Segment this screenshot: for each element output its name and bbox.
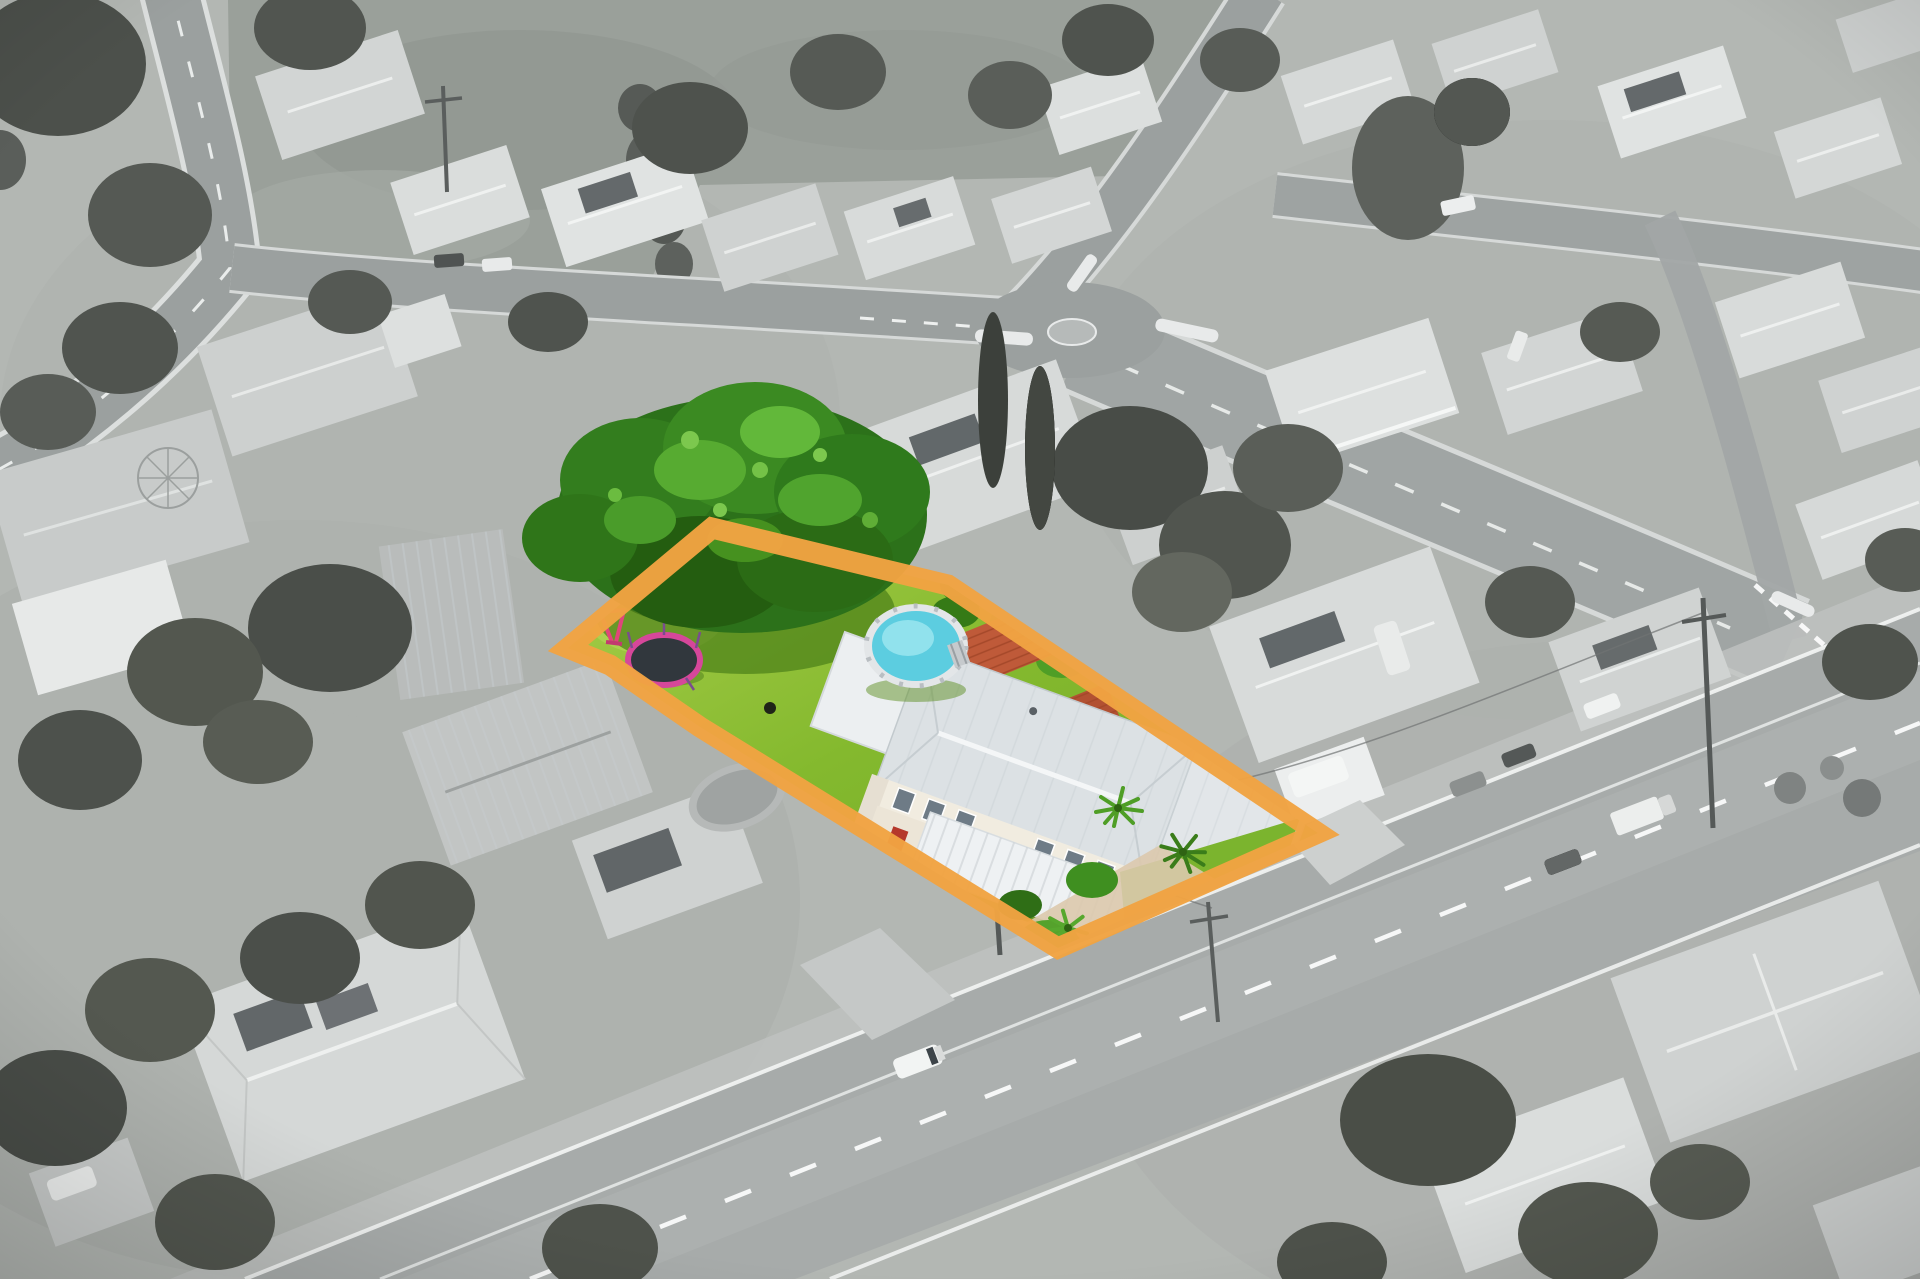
vignette <box>0 0 1920 1279</box>
aerial-photo: Overhead drone photograph of a tropical … <box>0 0 1920 1279</box>
aerial-photo-canvas <box>0 0 1920 1279</box>
